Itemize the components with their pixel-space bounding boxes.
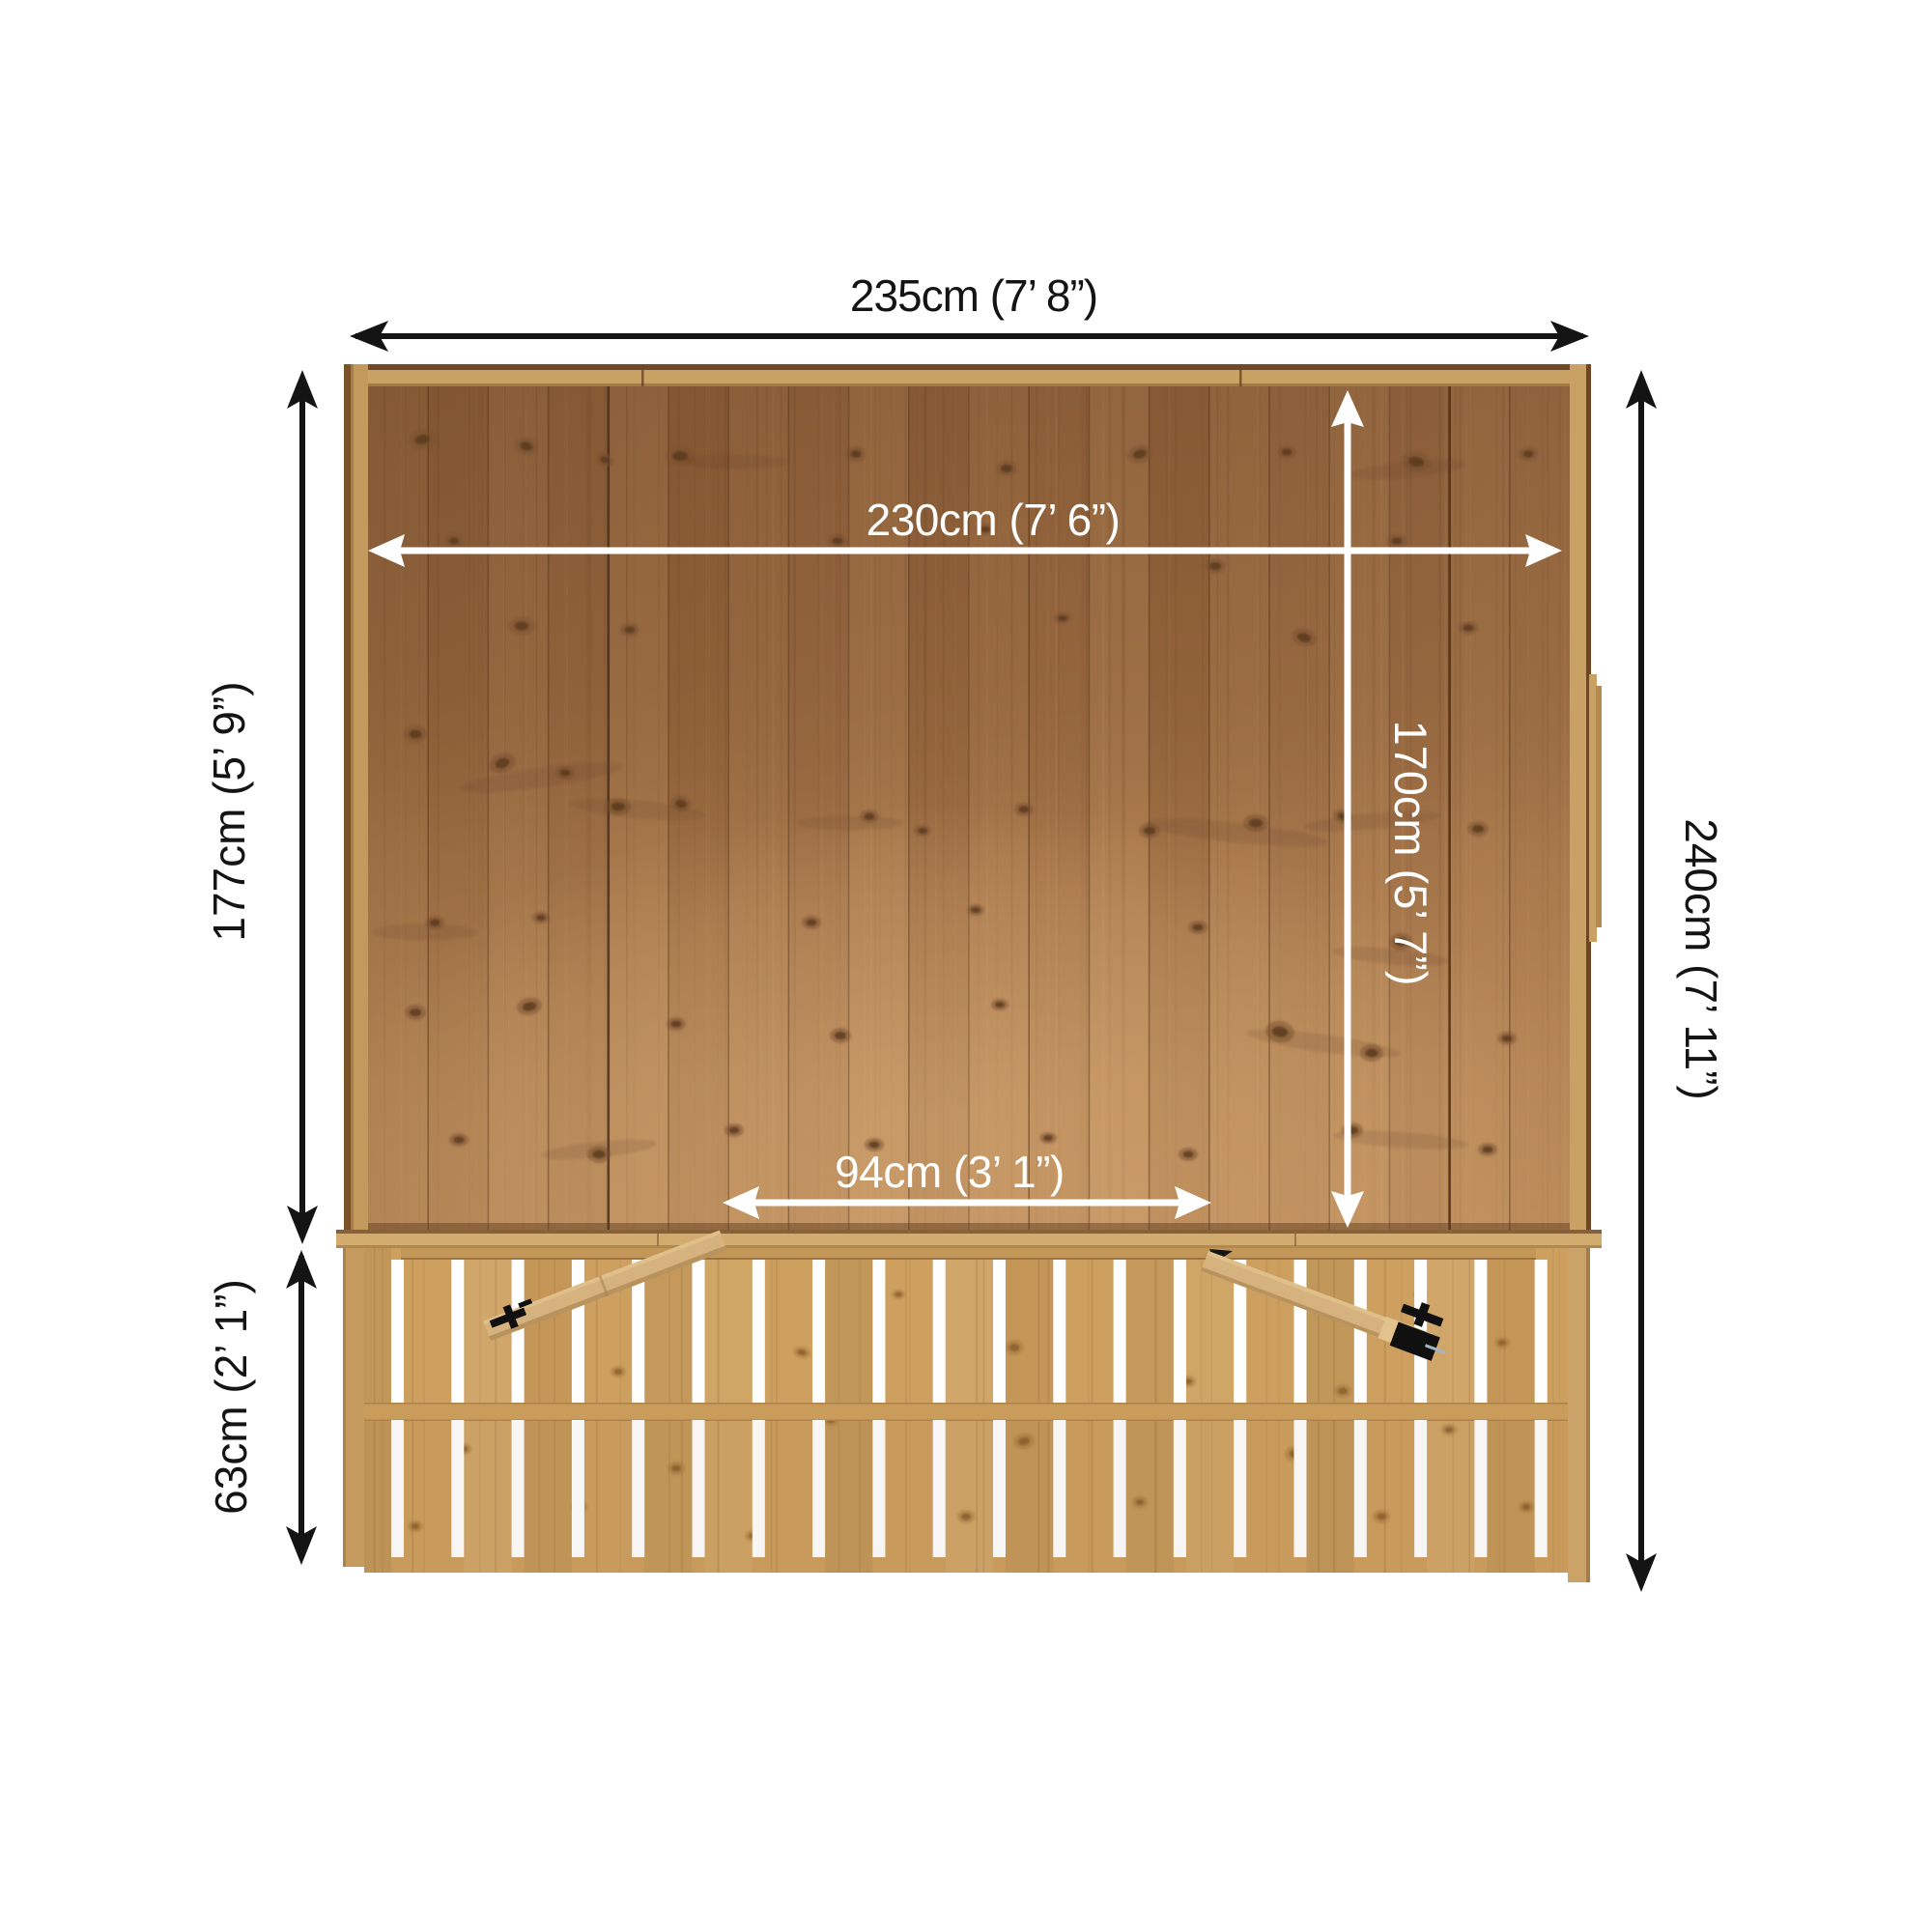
svg-text:170cm (5’ 7”): 170cm (5’ 7”) — [1385, 720, 1436, 985]
svg-text:230cm (7’ 6”): 230cm (7’ 6”) — [867, 495, 1121, 545]
svg-text:63cm (2’ 1”): 63cm (2’ 1”) — [206, 1279, 256, 1515]
svg-text:240cm (7’ 11”): 240cm (7’ 11”) — [1676, 818, 1726, 1099]
svg-text:235cm (7’ 8”): 235cm (7’ 8”) — [850, 270, 1097, 321]
svg-text:177cm (5’ 9”): 177cm (5’ 9”) — [204, 681, 254, 941]
svg-text:94cm (3’ 1”): 94cm (3’ 1”) — [835, 1147, 1065, 1197]
